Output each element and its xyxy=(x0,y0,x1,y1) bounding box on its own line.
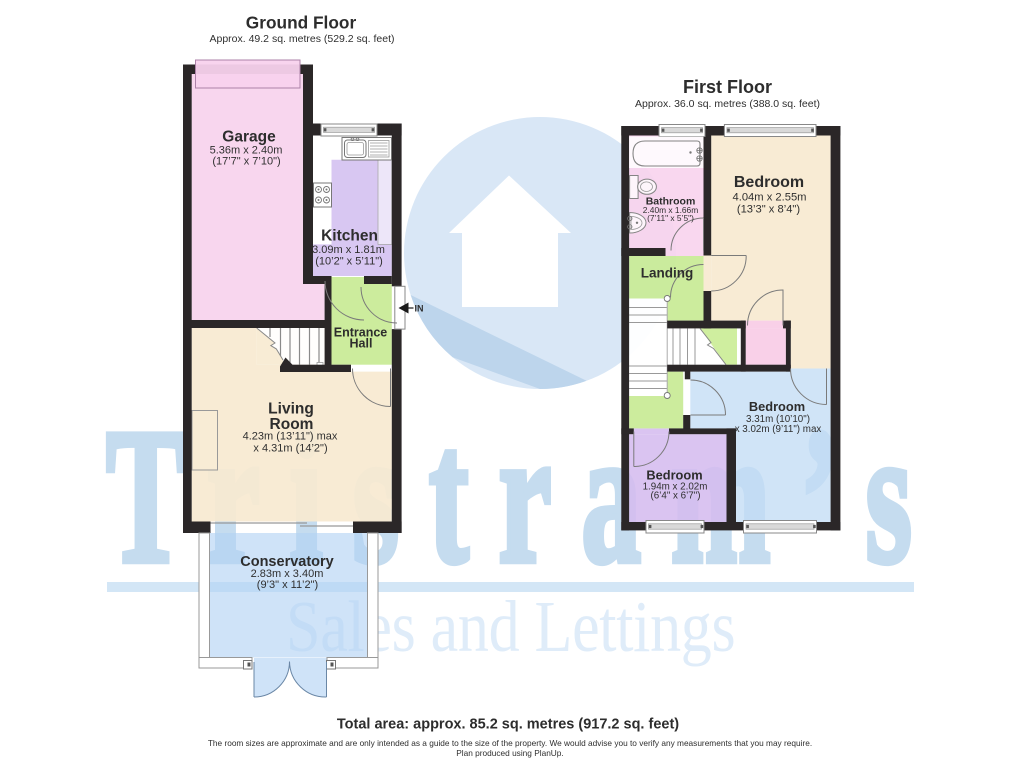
svg-text:Total area: approx. 85.2 sq. m: Total area: approx. 85.2 sq. metres (917… xyxy=(337,717,679,733)
svg-text:Bedroom: Bedroom xyxy=(646,468,702,483)
svg-text:(17’7" x 7’10"): (17’7" x 7’10") xyxy=(212,156,280,168)
svg-text:First Floor: First Floor xyxy=(683,77,772,97)
svg-text:3.09m x 1.81m: 3.09m x 1.81m xyxy=(312,244,385,256)
svg-text:Approx. 36.0 sq. metres (388.0: Approx. 36.0 sq. metres (388.0 sq. feet) xyxy=(635,98,820,110)
svg-text:x 3.02m (9’11") max: x 3.02m (9’11") max xyxy=(735,424,822,435)
svg-text:IN: IN xyxy=(415,304,424,314)
svg-text:4.23m (13’11") max: 4.23m (13’11") max xyxy=(243,431,338,443)
svg-text:Bedroom: Bedroom xyxy=(734,174,804,191)
svg-text:5.36m x 2.40m: 5.36m x 2.40m xyxy=(210,145,283,157)
svg-text:(6’4" x 6’7"): (6’4" x 6’7") xyxy=(651,490,701,501)
svg-text:The room sizes are approximate: The room sizes are approximate and are o… xyxy=(208,738,812,748)
svg-text:Hall: Hall xyxy=(350,337,373,351)
svg-text:(13’3" x 8’4"): (13’3" x 8’4") xyxy=(737,204,801,216)
svg-text:(10’2" x 5’11"): (10’2" x 5’11") xyxy=(315,256,383,268)
svg-text:Ground Floor: Ground Floor xyxy=(246,13,357,33)
svg-text:(7’11" x 5’5"): (7’11" x 5’5") xyxy=(647,213,694,223)
svg-text:Plan produced using PlanUp.: Plan produced using PlanUp. xyxy=(456,748,563,758)
svg-text:Garage: Garage xyxy=(222,129,276,146)
svg-text:Landing: Landing xyxy=(641,266,694,281)
svg-text:(9’3" x 11’2"): (9’3" x 11’2") xyxy=(257,579,318,591)
svg-text:Approx. 49.2 sq. metres (529.2: Approx. 49.2 sq. metres (529.2 sq. feet) xyxy=(209,33,394,45)
svg-text:x 4.31m (14’2"): x 4.31m (14’2") xyxy=(253,443,327,455)
svg-text:Kitchen: Kitchen xyxy=(321,228,378,245)
svg-text:Living: Living xyxy=(268,401,314,418)
svg-text:Bedroom: Bedroom xyxy=(749,399,805,414)
svg-text:4.04m x 2.55m: 4.04m x 2.55m xyxy=(733,192,807,204)
